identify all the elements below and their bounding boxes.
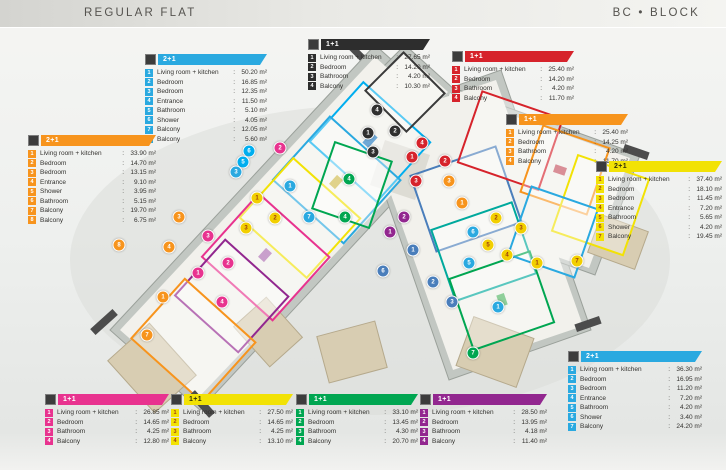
legend-header: 1+1 <box>452 51 574 62</box>
legend-row: 6 Shower 4.20 m² <box>596 223 722 233</box>
room-area: 3.95 m² <box>124 188 156 195</box>
legend-header: 1+1 <box>296 394 418 405</box>
room-area: 14.20 m² <box>398 64 430 71</box>
room-label: Bathroom <box>308 428 384 435</box>
legend-row: 1 Living room + kitchen 27.65 m² <box>308 53 430 63</box>
room-label: Living room + kitchen <box>608 176 688 183</box>
room-area: 19.45 m² <box>690 233 722 240</box>
unit-icon <box>596 161 607 172</box>
legend-header: 1+1 <box>45 394 169 405</box>
room-number-badge: 1 <box>45 409 53 417</box>
room-number-badge: 1 <box>28 150 36 158</box>
room-label: Living room + kitchen <box>157 69 233 76</box>
room-area: 13.10 m² <box>261 438 293 445</box>
unit-icon <box>171 394 182 405</box>
unit-type-label: 1+1 <box>465 51 574 62</box>
unit-type-label: 2+1 <box>609 161 722 172</box>
room-area: 4.20 m² <box>670 404 702 411</box>
room-number-badge: 5 <box>28 188 36 196</box>
legend-header: 1+1 <box>308 39 430 50</box>
legend-row: 2 Bedroom 13.45 m² <box>296 418 418 428</box>
room-number-badge: 2 <box>452 75 460 83</box>
legend-box: 1+1 1 Living room + kitchen 25.40 m² 2 B… <box>506 114 628 166</box>
room-area: 11.45 m² <box>690 195 722 202</box>
room-number-badge: 2 <box>308 63 316 71</box>
room-area: 7.20 m² <box>690 205 722 212</box>
legend-row: 4 Balcony 11.70 m² <box>452 94 574 104</box>
room-label: Bedroom <box>608 195 688 202</box>
room-label: Bathroom <box>580 404 668 411</box>
room-label: Bathroom <box>40 198 122 205</box>
unit-type-label: 2+1 <box>158 54 267 65</box>
legend-row: 3 Bathroom 4.25 m² <box>171 427 293 437</box>
room-number-badge: 6 <box>145 116 153 124</box>
room-number-badge: 3 <box>596 195 604 203</box>
legend-row: 3 Bathroom 4.25 m² <box>45 427 169 437</box>
room-label: Living room + kitchen <box>308 409 384 416</box>
legend-rows: 1 Living room + kitchen 27.65 m² 2 Bedro… <box>308 53 430 91</box>
legend-row: 6 Bathroom 5.15 m² <box>28 197 156 207</box>
room-area: 6.75 m² <box>124 217 156 224</box>
legend-row: 1 Living room + kitchen 33.10 m² <box>296 408 418 418</box>
room-area: 16.85 m² <box>235 79 267 86</box>
legend-rows: 1 Living room + kitchen 25.40 m² 2 Bedro… <box>452 65 574 103</box>
room-label: Balcony <box>40 207 122 214</box>
room-label: Bedroom <box>308 419 384 426</box>
room-number-badge: 3 <box>296 428 304 436</box>
room-label: Entrance <box>40 179 122 186</box>
legend-row: 7 Balcony 12.05 m² <box>145 125 267 135</box>
room-number-badge: 2 <box>171 418 179 426</box>
room-area: 13.45 m² <box>386 419 418 426</box>
room-number-badge: 2 <box>28 159 36 167</box>
room-area: 11.20 m² <box>670 385 702 392</box>
unit-type-label: 1+1 <box>58 394 169 405</box>
legend-row: 6 Shower 3.40 m² <box>568 413 702 423</box>
legend-row: 2 Bedroom 16.85 m² <box>145 78 267 88</box>
room-number-badge: 4 <box>452 94 460 102</box>
legend-row: 6 Shower 4.05 m² <box>145 116 267 126</box>
room-label: Balcony <box>40 217 122 224</box>
room-label: Bedroom <box>464 76 540 83</box>
room-number-badge: 7 <box>145 126 153 134</box>
unit-type-label: 1+1 <box>321 39 430 50</box>
room-area: 14.70 m² <box>124 160 156 167</box>
room-area: 19.70 m² <box>124 207 156 214</box>
room-label: Balcony <box>432 438 513 445</box>
legend-row: 4 Balcony 11.40 m² <box>420 437 547 447</box>
room-area: 12.80 m² <box>137 438 169 445</box>
room-number-badge: 6 <box>568 413 576 421</box>
unit-type-label: 1+1 <box>309 394 418 405</box>
room-area: 3.40 m² <box>670 414 702 421</box>
room-label: Balcony <box>320 83 396 90</box>
room-area: 5.65 m² <box>690 214 722 221</box>
room-label: Shower <box>608 224 688 231</box>
room-label: Balcony <box>57 438 135 445</box>
room-area: 11.40 m² <box>515 438 547 445</box>
legend-row: 4 Entrance 11.50 m² <box>145 97 267 107</box>
room-label: Shower <box>157 117 233 124</box>
legend-row: 1 Living room + kitchen 33.90 m² <box>28 149 156 159</box>
room-area: 27.50 m² <box>261 409 293 416</box>
unit-type-label: 1+1 <box>433 394 547 405</box>
legend-row: 4 Balcony 13.10 m² <box>171 437 293 447</box>
room-area: 25.40 m² <box>542 66 574 73</box>
legend-rows: 1 Living room + kitchen 28.50 m² 2 Bedro… <box>420 408 547 446</box>
room-area: 12.05 m² <box>235 126 267 133</box>
legend-row: 7 Balcony 19.70 m² <box>28 206 156 216</box>
room-label: Bedroom <box>580 376 668 383</box>
room-number-badge: 7 <box>568 423 576 431</box>
room-number-badge: 2 <box>506 138 514 146</box>
room-label: Bedroom <box>580 385 668 392</box>
room-label: Living room + kitchen <box>580 366 668 373</box>
room-label: Bathroom <box>183 428 259 435</box>
room-area: 33.90 m² <box>124 150 156 157</box>
room-number-badge: 5 <box>568 404 576 412</box>
unit-icon <box>145 54 156 65</box>
legend-box: 1+1 1 Living room + kitchen 28.50 m² 2 B… <box>420 394 547 446</box>
room-number-badge: 2 <box>568 375 576 383</box>
room-area: 28.50 m² <box>515 409 547 416</box>
legend-rows: 1 Living room + kitchen 37.40 m² 2 Bedro… <box>596 175 722 242</box>
room-number-badge: 2 <box>45 418 53 426</box>
legend-header: 2+1 <box>596 161 722 172</box>
room-label: Bathroom <box>518 148 594 155</box>
legend-row: 3 Bedroom 11.20 m² <box>568 384 702 394</box>
room-area: 11.50 m² <box>235 98 267 105</box>
room-area: 50.20 m² <box>235 69 267 76</box>
room-label: Balcony <box>608 233 688 240</box>
room-label: Entrance <box>580 395 668 402</box>
room-number-badge: 4 <box>28 178 36 186</box>
room-number-badge: 8 <box>28 216 36 224</box>
room-number-badge: 1 <box>568 366 576 374</box>
legend-rows: 1 Living room + kitchen 33.90 m² 2 Bedro… <box>28 149 156 225</box>
legend-row: 2 Bedroom 14.65 m² <box>45 418 169 428</box>
room-label: Bathroom <box>57 428 135 435</box>
legend-row: 8 Balcony 5.60 m² <box>145 135 267 145</box>
room-label: Balcony <box>518 158 594 165</box>
room-number-badge: 3 <box>452 85 460 93</box>
room-label: Living room + kitchen <box>464 66 540 73</box>
room-label: Bathroom <box>320 73 396 80</box>
room-area: 4.20 m² <box>398 73 430 80</box>
room-number-badge: 1 <box>420 409 428 417</box>
legend-header: 1+1 <box>506 114 628 125</box>
room-label: Shower <box>40 188 122 195</box>
room-number-badge: 5 <box>596 214 604 222</box>
room-number-badge: 1 <box>171 409 179 417</box>
room-area: 33.10 m² <box>386 409 418 416</box>
legend-row: 7 Balcony 24.20 m² <box>568 422 702 432</box>
legend-row: 4 Entrance 7.20 m² <box>596 204 722 214</box>
room-label: Shower <box>580 414 668 421</box>
room-area: 5.60 m² <box>235 136 267 143</box>
room-number-badge: 3 <box>308 73 316 81</box>
room-number-badge: 3 <box>45 428 53 436</box>
room-label: Bedroom <box>57 419 135 426</box>
unit-icon <box>506 114 517 125</box>
room-area: 13.15 m² <box>124 169 156 176</box>
legend-header: 1+1 <box>171 394 293 405</box>
room-label: Entrance <box>608 205 688 212</box>
unit-type-label: 2+1 <box>581 351 702 362</box>
legend-row: 4 Balcony 12.80 m² <box>45 437 169 447</box>
legend-row: 4 Balcony 20.70 m² <box>296 437 418 447</box>
legend-header: 2+1 <box>568 351 702 362</box>
legend-row: 2 Bedroom 18.10 m² <box>596 185 722 195</box>
room-number-badge: 4 <box>308 82 316 90</box>
room-number-badge: 3 <box>171 428 179 436</box>
room-number-badge: 4 <box>420 437 428 445</box>
unit-type-label: 1+1 <box>184 394 293 405</box>
unit-type-label: 1+1 <box>519 114 628 125</box>
legend-box: 2+1 1 Living room + kitchen 50.20 m² 2 B… <box>145 54 267 144</box>
room-area: 24.20 m² <box>670 423 702 430</box>
room-label: Balcony <box>580 423 668 430</box>
room-number-badge: 4 <box>596 204 604 212</box>
unit-icon <box>28 135 39 146</box>
legend-row: 3 Bathroom 4.20 m² <box>506 147 628 157</box>
room-number-badge: 2 <box>145 78 153 86</box>
room-label: Bedroom <box>608 186 688 193</box>
room-area: 14.65 m² <box>137 419 169 426</box>
room-number-badge: 6 <box>596 223 604 231</box>
legend-row: 5 Bathroom 5.65 m² <box>596 213 722 223</box>
room-area: 14.20 m² <box>542 76 574 83</box>
legend-row: 5 Bathroom 5.10 m² <box>145 106 267 116</box>
legend-rows: 1 Living room + kitchen 33.10 m² 2 Bedro… <box>296 408 418 446</box>
legend-row: 3 Bathroom 4.20 m² <box>308 72 430 82</box>
room-label: Living room + kitchen <box>40 150 122 157</box>
legend-row: 3 Bedroom 11.45 m² <box>596 194 722 204</box>
legend-box: 1+1 1 Living room + kitchen 26.85 m² 2 B… <box>45 394 169 446</box>
room-area: 4.20 m² <box>596 148 628 155</box>
room-label: Balcony <box>157 136 233 143</box>
room-label: Bedroom <box>157 88 233 95</box>
unit-type-label: 2+1 <box>41 135 156 146</box>
unit-icon <box>296 394 307 405</box>
legend-row: 2 Bedroom 14.25 m² <box>506 138 628 148</box>
legend-row: 4 Entrance 7.20 m² <box>568 394 702 404</box>
legend-row: 3 Bathroom 4.18 m² <box>420 427 547 437</box>
room-area: 9.10 m² <box>124 179 156 186</box>
room-number-badge: 4 <box>145 97 153 105</box>
room-number-badge: 2 <box>596 185 604 193</box>
room-label: Living room + kitchen <box>518 129 594 136</box>
legend-row: 1 Living room + kitchen 25.40 m² <box>452 65 574 75</box>
room-area: 4.20 m² <box>690 224 722 231</box>
room-label: Entrance <box>157 98 233 105</box>
room-number-badge: 4 <box>45 437 53 445</box>
room-number-badge: 3 <box>28 169 36 177</box>
floorplan-sheet: REGULAR FLAT BC • BLOCK <box>0 0 726 470</box>
room-area: 14.25 m² <box>596 139 628 146</box>
room-area: 26.85 m² <box>137 409 169 416</box>
room-number-badge: 4 <box>506 157 514 165</box>
room-label: Bathroom <box>608 214 688 221</box>
room-number-badge: 3 <box>506 148 514 156</box>
room-area: 12.35 m² <box>235 88 267 95</box>
legend-row: 4 Entrance 9.10 m² <box>28 178 156 188</box>
room-label: Living room + kitchen <box>57 409 135 416</box>
legend-row: 1 Living room + kitchen 50.20 m² <box>145 68 267 78</box>
legend-row: 2 Bedroom 14.20 m² <box>308 63 430 73</box>
room-area: 4.05 m² <box>235 117 267 124</box>
legend-header: 1+1 <box>420 394 547 405</box>
room-number-badge: 4 <box>568 394 576 402</box>
legend-row: 3 Bathroom 4.20 m² <box>452 84 574 94</box>
legend-rows: 1 Living room + kitchen 26.85 m² 2 Bedro… <box>45 408 169 446</box>
room-area: 4.25 m² <box>137 428 169 435</box>
room-number-badge: 3 <box>568 385 576 393</box>
room-label: Bathroom <box>432 428 513 435</box>
legend-row: 7 Balcony 19.45 m² <box>596 232 722 242</box>
legend-row: 1 Living room + kitchen 26.85 m² <box>45 408 169 418</box>
room-number-badge: 1 <box>296 409 304 417</box>
room-label: Balcony <box>157 126 233 133</box>
legend-header: 2+1 <box>145 54 267 65</box>
legend-row: 3 Bedroom 13.15 m² <box>28 168 156 178</box>
room-label: Bedroom <box>320 64 396 71</box>
room-area: 5.10 m² <box>235 107 267 114</box>
legend-box: 1+1 1 Living room + kitchen 27.50 m² 2 B… <box>171 394 293 446</box>
room-label: Bedroom <box>40 160 122 167</box>
room-label: Bedroom <box>183 419 259 426</box>
legend-row: 8 Balcony 6.75 m² <box>28 216 156 226</box>
legend-row: 1 Living room + kitchen 25.40 m² <box>506 128 628 138</box>
room-number-badge: 1 <box>308 54 316 62</box>
room-number-badge: 1 <box>596 176 604 184</box>
room-area: 16.95 m² <box>670 376 702 383</box>
room-area: 4.20 m² <box>542 85 574 92</box>
legend-box: 1+1 1 Living room + kitchen 25.40 m² 2 B… <box>452 51 574 103</box>
legend-row: 3 Bathroom 4.30 m² <box>296 427 418 437</box>
room-area: 25.40 m² <box>596 129 628 136</box>
room-area: 27.65 m² <box>398 54 430 61</box>
unit-icon <box>452 51 463 62</box>
room-number-badge: 7 <box>28 207 36 215</box>
unit-icon <box>308 39 319 50</box>
legend-row: 2 Bedroom 14.20 m² <box>452 75 574 85</box>
room-area: 5.15 m² <box>124 198 156 205</box>
room-label: Bedroom <box>432 419 513 426</box>
room-number-badge: 6 <box>28 197 36 205</box>
room-area: 4.25 m² <box>261 428 293 435</box>
room-label: Balcony <box>308 438 384 445</box>
room-area: 4.30 m² <box>386 428 418 435</box>
legend-row: 2 Bedroom 16.95 m² <box>568 375 702 385</box>
legend-row: 2 Bedroom 14.65 m² <box>171 418 293 428</box>
room-number-badge: 4 <box>171 437 179 445</box>
legend-box: 2+1 1 Living room + kitchen 37.40 m² 2 B… <box>596 161 722 242</box>
legend-row: 1 Living room + kitchen 37.40 m² <box>596 175 722 185</box>
room-label: Bedroom <box>518 139 594 146</box>
room-label: Bedroom <box>157 79 233 86</box>
room-area: 14.65 m² <box>261 419 293 426</box>
room-label: Living room + kitchen <box>432 409 513 416</box>
room-area: 37.40 m² <box>690 176 722 183</box>
room-number-badge: 7 <box>596 233 604 241</box>
unit-icon <box>420 394 431 405</box>
legend-box: 2+1 1 Living room + kitchen 36.30 m² 2 B… <box>568 351 702 432</box>
room-area: 4.18 m² <box>515 428 547 435</box>
room-label: Balcony <box>464 95 540 102</box>
room-label: Balcony <box>183 438 259 445</box>
legend-row: 1 Living room + kitchen 36.30 m² <box>568 365 702 375</box>
unit-icon <box>45 394 56 405</box>
room-number-badge: 5 <box>145 107 153 115</box>
room-label: Living room + kitchen <box>183 409 259 416</box>
legend-rows: 1 Living room + kitchen 27.50 m² 2 Bedro… <box>171 408 293 446</box>
room-number-badge: 3 <box>145 88 153 96</box>
room-number-badge: 4 <box>296 437 304 445</box>
room-number-badge: 1 <box>506 129 514 137</box>
room-area: 18.10 m² <box>690 186 722 193</box>
room-area: 11.70 m² <box>542 95 574 102</box>
room-number-badge: 2 <box>296 418 304 426</box>
legend-row: 4 Balcony 10.30 m² <box>308 82 430 92</box>
room-label: Bathroom <box>464 85 540 92</box>
room-label: Bedroom <box>40 169 122 176</box>
room-number-badge: 2 <box>420 418 428 426</box>
room-area: 20.70 m² <box>386 438 418 445</box>
legend-header: 2+1 <box>28 135 156 146</box>
legend-row: 5 Shower 3.95 m² <box>28 187 156 197</box>
legend-box: 2+1 1 Living room + kitchen 33.90 m² 2 B… <box>28 135 156 225</box>
room-number-badge: 3 <box>420 428 428 436</box>
legend-rows: 1 Living room + kitchen 36.30 m² 2 Bedro… <box>568 365 702 432</box>
room-area: 10.30 m² <box>398 83 430 90</box>
room-number-badge: 1 <box>145 69 153 77</box>
room-number-badge: 1 <box>452 66 460 74</box>
legend-row: 5 Bathroom 4.20 m² <box>568 403 702 413</box>
room-label: Bathroom <box>157 107 233 114</box>
legend-row: 2 Bedroom 14.70 m² <box>28 159 156 169</box>
legend-row: 1 Living room + kitchen 27.50 m² <box>171 408 293 418</box>
legend-box: 1+1 1 Living room + kitchen 33.10 m² 2 B… <box>296 394 418 446</box>
legend-row: 3 Bedroom 12.35 m² <box>145 87 267 97</box>
legend-box: 1+1 1 Living room + kitchen 27.65 m² 2 B… <box>308 39 430 91</box>
room-area: 13.95 m² <box>515 419 547 426</box>
legend-row: 2 Bedroom 13.95 m² <box>420 418 547 428</box>
unit-icon <box>568 351 579 362</box>
legend-rows: 1 Living room + kitchen 50.20 m² 2 Bedro… <box>145 68 267 144</box>
room-area: 36.30 m² <box>670 366 702 373</box>
legend-row: 1 Living room + kitchen 28.50 m² <box>420 408 547 418</box>
room-label: Living room + kitchen <box>320 54 396 61</box>
room-area: 7.20 m² <box>670 395 702 402</box>
